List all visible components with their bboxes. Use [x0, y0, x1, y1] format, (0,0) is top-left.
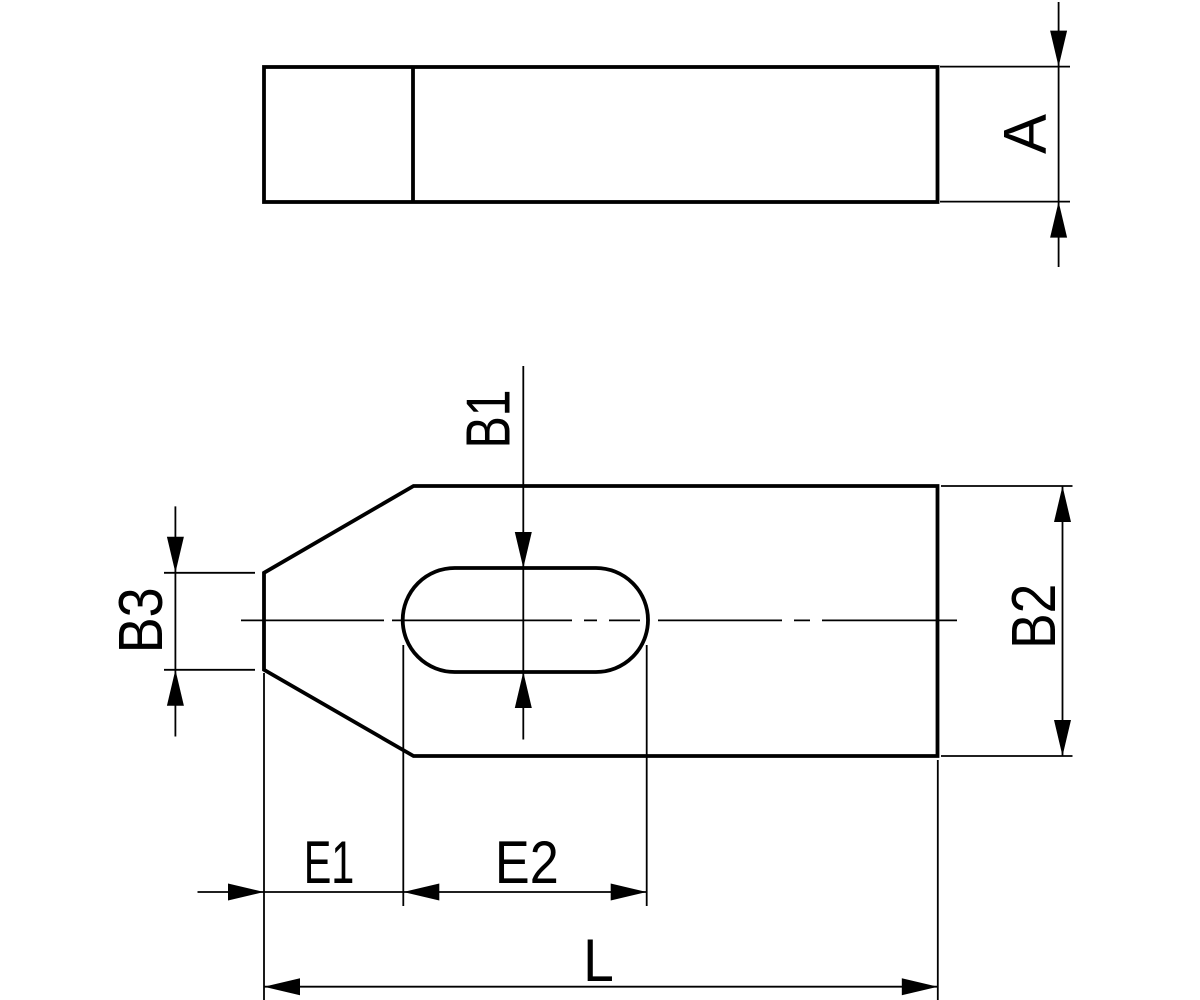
svg-text:E2: E2 [495, 829, 559, 896]
svg-text:L: L [583, 928, 614, 995]
svg-text:B2: B2 [1000, 584, 1069, 649]
svg-text:B3: B3 [107, 587, 176, 653]
svg-text:E1: E1 [304, 828, 355, 896]
svg-text:A: A [991, 114, 1058, 154]
svg-text:B1: B1 [454, 389, 523, 448]
